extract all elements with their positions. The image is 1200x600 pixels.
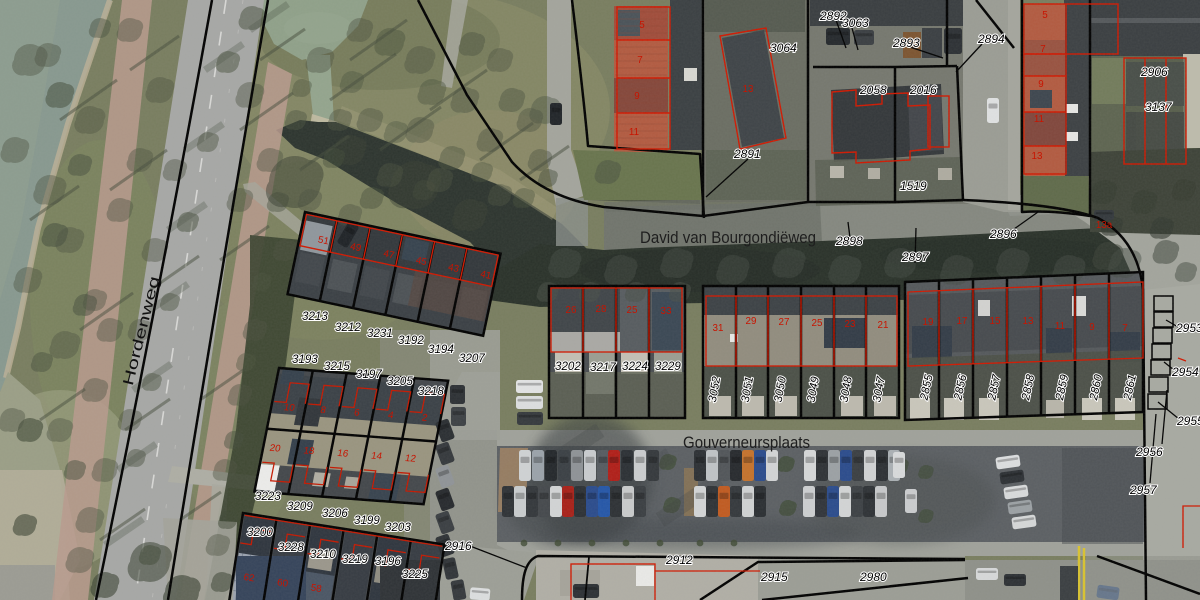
svg-text:12: 12: [404, 453, 417, 465]
svg-text:27: 27: [779, 317, 790, 328]
svg-text:3202: 3202: [555, 360, 581, 373]
svg-text:7: 7: [1040, 44, 1045, 55]
svg-text:3225: 3225: [402, 568, 428, 581]
svg-text:3210: 3210: [310, 548, 336, 561]
svg-text:16: 16: [336, 448, 349, 460]
svg-text:9: 9: [1089, 322, 1094, 333]
svg-text:2980: 2980: [859, 570, 887, 584]
svg-text:3224: 3224: [622, 360, 648, 373]
svg-text:13: 13: [1023, 316, 1034, 327]
svg-text:3223: 3223: [255, 490, 281, 503]
svg-text:1519: 1519: [900, 179, 927, 193]
svg-text:11: 11: [1034, 114, 1044, 125]
svg-text:33: 33: [661, 306, 672, 317]
svg-text:3215: 3215: [324, 360, 350, 373]
svg-text:2893: 2893: [892, 36, 920, 50]
svg-text:2898: 2898: [835, 234, 863, 248]
svg-text:3137: 3137: [1145, 100, 1173, 114]
svg-text:17: 17: [957, 316, 968, 327]
svg-text:3192: 3192: [398, 334, 424, 347]
svg-text:3193: 3193: [292, 353, 318, 366]
svg-text:18: 18: [302, 446, 315, 458]
svg-text:2058: 2058: [859, 83, 887, 97]
svg-text:2915: 2915: [760, 570, 788, 584]
svg-text:3063: 3063: [842, 16, 869, 30]
svg-text:3196: 3196: [375, 555, 401, 568]
svg-text:3207: 3207: [459, 352, 485, 365]
svg-text:3194: 3194: [428, 343, 454, 356]
svg-text:Gouverneursplaats: Gouverneursplaats: [683, 433, 810, 452]
svg-text:41: 41: [479, 269, 492, 282]
svg-text:3213: 3213: [302, 310, 328, 323]
svg-text:2956: 2956: [1135, 445, 1163, 459]
svg-text:23: 23: [845, 319, 856, 330]
svg-text:3219: 3219: [342, 553, 368, 566]
svg-text:9: 9: [634, 91, 639, 102]
svg-text:3197: 3197: [356, 368, 382, 381]
svg-text:3064: 3064: [770, 41, 797, 55]
svg-text:7: 7: [637, 55, 642, 66]
svg-text:7: 7: [1122, 323, 1127, 334]
svg-text:3203: 3203: [385, 521, 411, 534]
svg-text:David van Bourgondiëweg: David van Bourgondiëweg: [640, 229, 816, 247]
svg-text:11: 11: [1055, 321, 1065, 332]
svg-text:3228: 3228: [278, 541, 304, 554]
svg-text:31: 31: [713, 323, 724, 334]
svg-text:28: 28: [596, 304, 607, 315]
svg-text:3200: 3200: [247, 526, 273, 539]
svg-text:25: 25: [627, 305, 638, 316]
svg-text:3209: 3209: [287, 500, 313, 513]
svg-text:47: 47: [382, 248, 395, 261]
svg-text:5: 5: [1042, 10, 1048, 21]
svg-text:2906: 2906: [1140, 65, 1168, 79]
svg-text:3212: 3212: [335, 321, 361, 334]
svg-text:3218: 3218: [418, 385, 444, 398]
svg-text:21: 21: [878, 320, 889, 331]
svg-text:25: 25: [812, 318, 823, 329]
svg-text:2957: 2957: [1129, 483, 1158, 497]
svg-text:2955: 2955: [1176, 414, 1200, 428]
svg-text:3229: 3229: [655, 360, 681, 373]
svg-text:13: 13: [743, 84, 754, 95]
svg-text:51: 51: [317, 234, 330, 247]
svg-text:15: 15: [990, 316, 1001, 327]
svg-text:2894: 2894: [977, 32, 1005, 46]
svg-text:26: 26: [566, 305, 577, 316]
svg-text:11: 11: [629, 127, 639, 138]
svg-text:2016: 2016: [909, 83, 937, 97]
svg-text:62: 62: [243, 572, 255, 585]
svg-text:29: 29: [746, 316, 757, 327]
svg-text:3205: 3205: [387, 375, 413, 388]
svg-text:2954: 2954: [1171, 365, 1199, 379]
svg-text:2891: 2891: [733, 147, 761, 161]
svg-text:49: 49: [349, 241, 362, 254]
svg-text:13: 13: [1032, 151, 1043, 162]
svg-text:2912: 2912: [665, 553, 693, 567]
svg-text:5: 5: [639, 20, 645, 31]
svg-text:9: 9: [1038, 79, 1043, 90]
svg-text:19: 19: [923, 317, 934, 328]
svg-text:2896: 2896: [989, 227, 1017, 241]
svg-text:2897: 2897: [901, 250, 930, 264]
svg-text:3199: 3199: [354, 514, 380, 527]
svg-text:3217: 3217: [590, 361, 616, 374]
svg-text:3206: 3206: [322, 507, 348, 520]
svg-text:2953: 2953: [1175, 321, 1200, 335]
svg-text:13a: 13a: [1096, 220, 1113, 231]
svg-text:3231: 3231: [367, 327, 393, 340]
svg-text:2916: 2916: [444, 539, 472, 553]
